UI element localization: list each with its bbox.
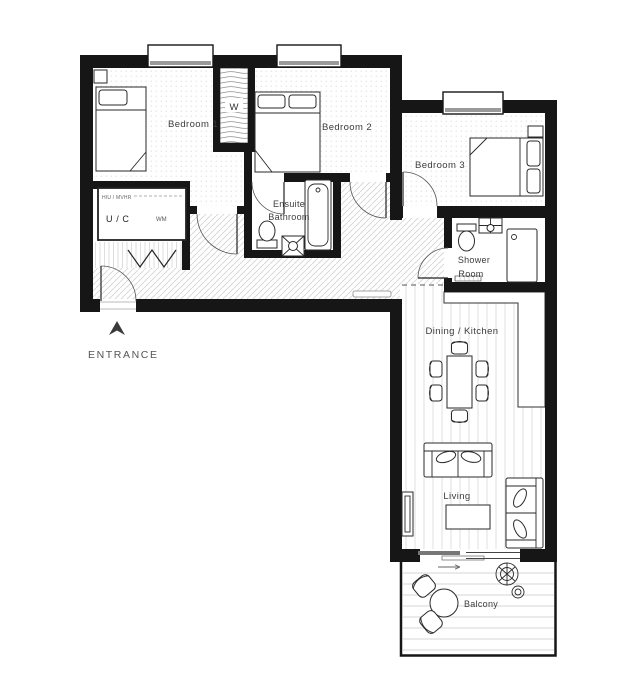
shower-room-label-line1: Shower <box>458 255 490 265</box>
bedroom1-label: Bedroom 1 <box>168 119 218 130</box>
balcony-label: Balcony <box>464 599 498 609</box>
ensuite-basin <box>282 236 304 256</box>
shower-room-label-line2: Room <box>458 269 483 279</box>
hall-radiator <box>353 291 391 297</box>
sofa-2 <box>506 478 543 548</box>
tv-unit <box>402 492 413 536</box>
entrance-arrow-icon <box>109 321 125 335</box>
bedroom3-window <box>443 92 503 114</box>
living-label: Living <box>443 491 470 502</box>
coffee-table <box>446 505 490 529</box>
dining-table <box>447 356 472 408</box>
hall-floor-lobby <box>190 214 244 299</box>
hall-floor-corridor2 <box>400 218 444 284</box>
ensuite-toilet <box>257 221 277 248</box>
utility-sub-label: HIU / MVHR <box>102 195 132 201</box>
shower-basin <box>479 218 502 233</box>
shower-tray <box>507 229 537 282</box>
ensuite-door <box>252 182 284 214</box>
dining-kitchen-label: Dining / Kitchen <box>426 326 499 337</box>
wardrobe-label: W <box>230 102 239 113</box>
bedroom1-window <box>148 45 213 67</box>
bedroom3-label: Bedroom 3 <box>415 160 465 171</box>
floorplan-drawing: Bedroom 1 Bedroom 2 Bedroom 3 Ensuite Ba… <box>0 0 622 689</box>
ensuite-label-line1: Ensuite <box>273 199 305 209</box>
bedroom2-window <box>277 45 341 67</box>
bed-2 <box>255 92 320 172</box>
entrance-label: ENTRANCE <box>88 349 159 361</box>
hall-floor-entrance <box>93 268 190 299</box>
sofa-1 <box>424 443 492 477</box>
ensuite-label-line2: Bathroom <box>268 212 309 222</box>
shower-toilet <box>457 224 476 251</box>
washing-machine-label: WM <box>156 217 167 223</box>
hall-floor-mid <box>244 258 341 299</box>
utility-label: U / C <box>106 214 130 224</box>
floorplan-page: Bedroom 1 Bedroom 2 Bedroom 3 Ensuite Ba… <box>0 0 622 689</box>
bedroom2-label: Bedroom 2 <box>322 122 372 133</box>
